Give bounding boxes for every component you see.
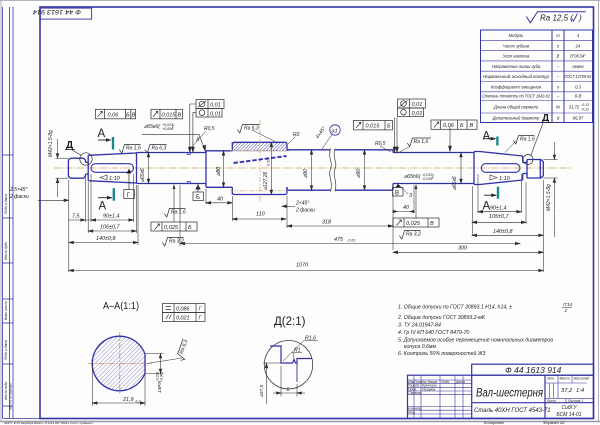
svg-text:Инв.№ подл.: Инв.№ подл. [4,381,8,400]
svg-text:М42×1,5-8g: М42×1,5-8g [546,184,552,211]
svg-text:318: 318 [322,220,331,226]
svg-text:14Р9(: 14Р9( [157,380,162,393]
svg-text:0,086: 0,086 [176,307,190,313]
svg-text:В: В [132,113,136,119]
svg-text:1:10: 1:10 [109,176,121,182]
svg-text:Нормальный исходный контур: Нормальный исходный контур [483,74,550,79]
svg-text:⌀37,5: ⌀37,5 [259,384,265,397]
svg-text:А: А [99,200,107,212]
svg-text:-0,033: -0,033 [422,177,432,181]
svg-text:Подп. и дата: Подп. и дата [4,340,8,360]
svg-text:А–А(1:1): А–А(1:1) [103,300,139,312]
svg-text:R2: R2 [293,132,300,138]
svg-text:8°06'34": 8°06'34" [570,54,586,59]
svg-text:⌀90: ⌀90 [356,169,362,178]
svg-text:0,01: 0,01 [412,102,423,108]
svg-text:1:4: 1:4 [576,388,584,394]
svg-text:2×45°: 2×45° [295,201,309,207]
svg-text:Дата: Дата [455,380,465,384]
svg-text:2 фаски: 2 фаски [295,208,315,214]
svg-text:Д(2:1): Д(2:1) [274,316,306,328]
svg-text:-0,061: -0,061 [160,372,164,381]
svg-text:31,72: 31,72 [569,105,580,110]
svg-text:⌀90: ⌀90 [303,169,309,178]
svg-text:300: 300 [458,246,467,252]
svg-text:БСМ 14-01: БСМ 14-01 [556,412,581,418]
svg-text:2 фаски: 2 фаски [9,194,29,200]
svg-text:Модуль: Модуль [509,33,524,38]
svg-text:Подп. и дата: Подп. и дата [4,194,8,214]
svg-text:⌀80: ⌀80 [216,167,222,176]
svg-text:Листов 1: Листов 1 [567,399,583,403]
svg-text:Ra 3,2: Ra 3,2 [406,231,421,237]
svg-text:0,3: 0,3 [575,85,581,90]
svg-text:7,5: 7,5 [72,214,80,220]
svg-text:Б: Б [460,123,464,129]
svg-text:0,015: 0,015 [162,113,177,119]
svg-text:СибГУ: СибГУ [561,405,577,411]
svg-text:Ф 44 1613 914: Ф 44 1613 914 [33,8,81,15]
svg-text:X: X [195,137,200,143]
svg-text:Вал-шестерня: Вал-шестерня [476,386,543,400]
svg-text:0,021: 0,021 [176,316,190,322]
svg-text:6. Контроль 50% поверхностей Ж: 6. Контроль 50% поверхностей Ж3 [398,350,486,357]
svg-text:90±1,4: 90±1,4 [103,214,119,220]
svg-text:Ra 6,3: Ra 6,3 [152,145,167,151]
svg-text:): ) [171,124,174,130]
svg-text:β: β [556,54,560,59]
svg-text:⌀65h6(: ⌀65h6( [404,174,422,180]
svg-text:96,97: 96,97 [573,116,584,121]
svg-text:2. Общие допуски ГОСТ 30893.2-: 2. Общие допуски ГОСТ 30893.2-мК [397,315,486,321]
svg-text:5. Допускаемое особое перемеще: 5. Допускаемое особое перемещение номина… [398,338,553,344]
svg-text:-2,63: -2,63 [347,239,355,243]
svg-text:-0,51: -0,51 [267,159,271,167]
svg-text:21,9: 21,9 [122,397,134,403]
svg-text:140±0,8: 140±0,8 [96,236,115,242]
svg-text:90±1,4: 90±1,4 [490,206,506,212]
svg-text:0,06: 0,06 [443,123,455,129]
svg-text:Б: Б [188,225,192,231]
svg-text:⌀65к6: ⌀65к6 [140,168,146,182]
svg-text:Ra 6,3: Ra 6,3 [244,125,259,131]
svg-text:-0,22: -0,22 [581,108,589,112]
svg-text:Б: Б [387,124,391,130]
svg-text:): ) [578,14,582,23]
svg-text:475: 475 [334,237,344,243]
svg-text:АМГЛ.В 05 Кафедра: АМГЛ.В 05 Кафедра [9,383,13,411]
svg-text:конуса 0,6мм: конуса 0,6мм [404,344,436,350]
svg-text:АМГЛ. В 05 Кафедра Вапол. И 12: АМГЛ. В 05 Кафедра Вапол. И 1213.007 300… [3,421,94,425]
svg-text:3. ТУ 24.01947-84: 3. ТУ 24.01947-84 [398,323,441,329]
svg-text:Ra 12,5 (: Ra 12,5 ( [540,14,574,23]
svg-text:В: В [430,221,434,227]
svg-text:0,015: 0,015 [366,124,381,130]
svg-text:Масса: Масса [560,377,570,381]
svg-text:а1: а1 [332,128,338,134]
svg-text:m: m [556,33,560,38]
svg-text:0,025: 0,025 [164,225,179,231]
svg-text:Б: Б [126,113,130,119]
svg-text:⌀65к6: ⌀65к6 [452,176,458,190]
svg-text:Ra 1,6: Ra 1,6 [171,209,186,215]
svg-text:Ф 44 1613 914: Ф 44 1613 914 [505,365,562,375]
svg-text:Ra 1,6: Ra 1,6 [520,136,535,142]
svg-text:106±0,7: 106±0,7 [100,225,120,231]
svg-text:40: 40 [217,197,223,203]
svg-text:Формат А2: Формат А2 [543,420,566,425]
svg-text:А: А [98,128,106,140]
svg-text:⌀127,26: ⌀127,26 [263,171,269,190]
svg-text:Лист: Лист [546,399,556,403]
svg-text:А: А [483,131,491,143]
svg-text:-0,13: -0,13 [581,103,589,107]
svg-text:Утв.: Утв. [408,410,416,414]
svg-text:): ) [431,174,434,180]
svg-text:140±0,8: 140±0,8 [493,229,512,235]
svg-text:24: 24 [575,43,581,48]
svg-text:Делительный диаметр: Делительный диаметр [492,116,541,121]
svg-text:2: 2 [564,308,568,313]
svg-text:Ra 1,6: Ra 1,6 [414,139,429,145]
svg-text:1:10: 1:10 [499,176,511,182]
svg-text:0,01: 0,01 [210,112,221,118]
svg-text:ГОСТ 13755-81: ГОСТ 13755-81 [565,74,592,79]
svg-text:1070: 1070 [296,263,308,269]
svg-text:Масштаб: Масштаб [574,377,590,381]
svg-text:Угол наклона: Угол наклона [503,54,530,59]
svg-text:-0,2: -0,2 [135,400,141,404]
svg-text:Взам. инв.№: Взам. инв.№ [4,301,8,320]
svg-text:40: 40 [403,205,409,211]
svg-text:В: В [395,191,399,197]
svg-text:Т.контр.: Т.контр. [408,391,422,395]
svg-text:Пузанов: Пузанов [422,387,435,391]
svg-text:2,5×45°: 2,5×45° [9,187,27,193]
svg-text:6: 6 [287,387,290,393]
svg-text:Сталь 40ХН ГОСТ 4543-71: Сталь 40ХН ГОСТ 4543-71 [474,408,551,414]
svg-text:⌀65к6(: ⌀65к6( [144,124,161,130]
svg-text:8-В: 8-В [575,94,582,99]
svg-text:4. Гр IV КП 640 ГОСТ 8479-70: 4. Гр IV КП 640 ГОСТ 8479-70 [398,330,469,336]
svg-text:Длина общей нормали: Длина общей нормали [493,105,539,110]
svg-text:Коэффициент смещения: Коэффициент смещения [491,85,542,90]
svg-text:110: 110 [256,212,265,218]
svg-text:М42×1,5-8g: М42×1,5-8g [48,130,54,157]
svg-text:105±0,7: 105±0,7 [489,214,509,220]
svg-text:0,01: 0,01 [412,111,423,117]
svg-text:Б: Б [196,195,200,201]
svg-text:37,2: 37,2 [561,388,573,394]
svg-text:0,025: 0,025 [406,221,421,227]
svg-text:В: В [178,113,182,119]
svg-text:Инв.№ дубл.: Инв.№ дубл. [4,241,8,260]
svg-text:Копировал: Копировал [484,420,505,425]
svg-text:Степень точности по ГОСТ 1643-: Степень точности по ГОСТ 1643-81 [482,94,550,99]
svg-text:1. Общие допуски по ГОСТ 30893: 1. Общие допуски по ГОСТ 30893.1 Н14, h1… [398,305,512,311]
svg-text:IT14: IT14 [563,302,573,307]
svg-text:В: В [470,123,474,129]
svg-text:Число зубьев: Число зубьев [503,43,530,48]
svg-text:левое: левое [571,64,584,69]
svg-text:Ra 1,6: Ra 1,6 [126,145,141,151]
svg-text:Направление линии зуба: Направление линии зуба [492,64,541,69]
svg-text:Лит.: Лит. [546,377,555,381]
svg-text:0,01: 0,01 [210,103,221,109]
svg-text:0,06: 0,06 [108,113,120,119]
svg-text:Подп.: Подп. [441,380,450,384]
